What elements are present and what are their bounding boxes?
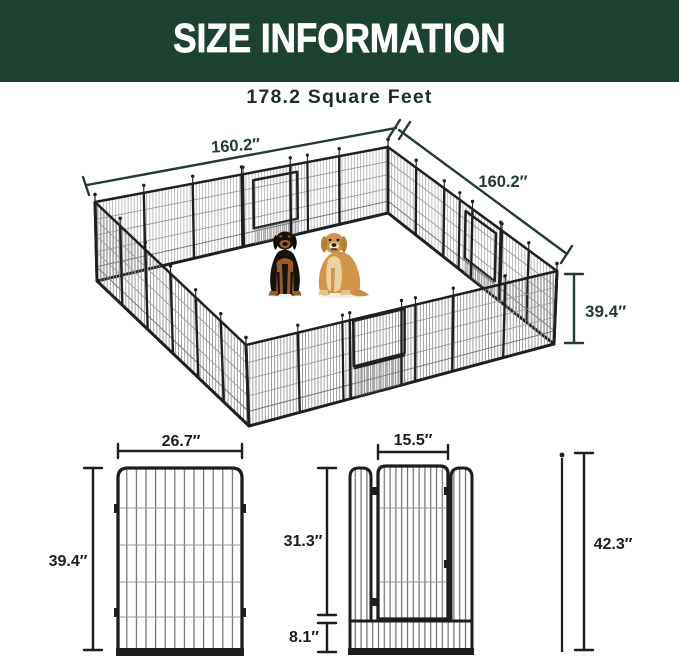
- svg-text:8.1″: 8.1″: [289, 629, 319, 646]
- svg-text:160.2″: 160.2″: [210, 135, 260, 156]
- svg-text:42.3″: 42.3″: [594, 536, 633, 553]
- svg-text:26.7″: 26.7″: [162, 433, 201, 450]
- svg-text:39.4″: 39.4″: [585, 302, 626, 321]
- svg-text:160.2″: 160.2″: [478, 173, 527, 191]
- svg-text:15.5″: 15.5″: [394, 432, 433, 449]
- svg-text:39.4″: 39.4″: [49, 553, 88, 570]
- svg-text:31.3″: 31.3″: [284, 533, 323, 550]
